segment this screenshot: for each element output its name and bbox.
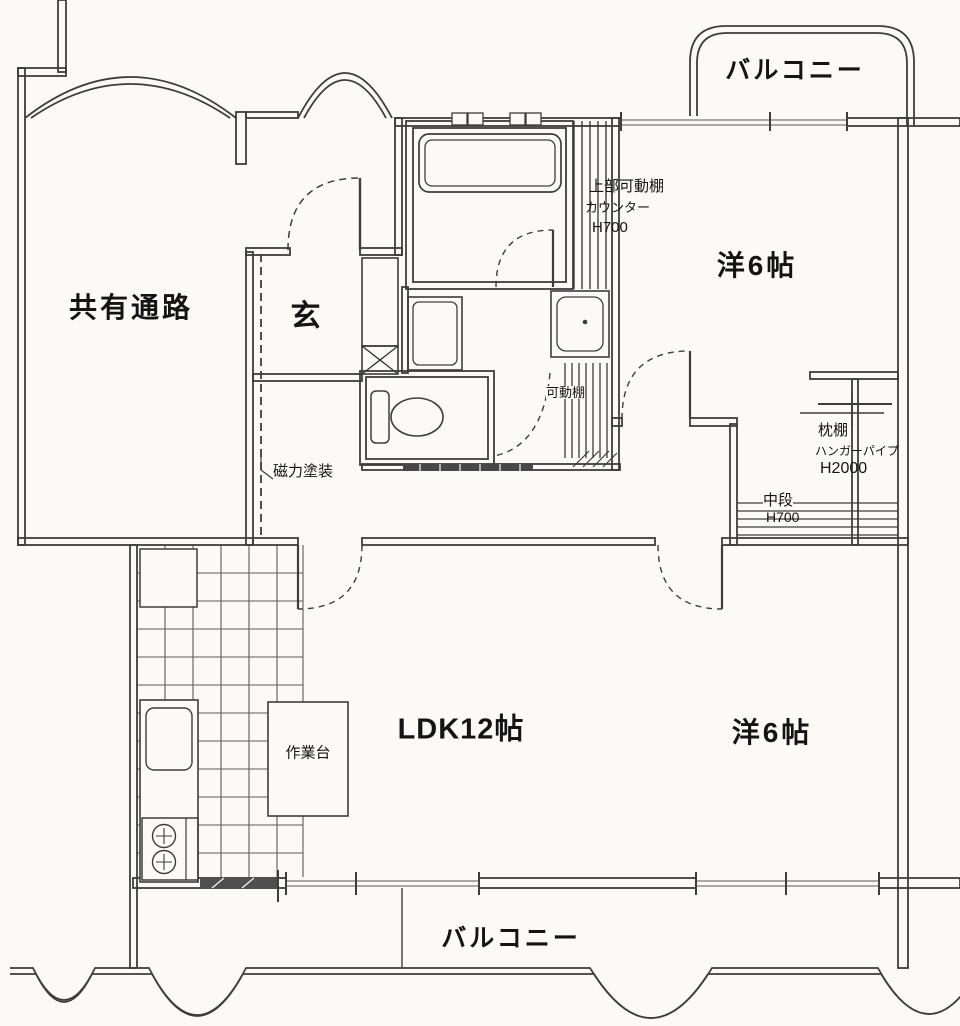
kitchen-counter [140,700,198,882]
wall-right [898,118,908,968]
fixtures [140,134,609,882]
annotation-counter: カウンター [585,201,650,214]
room-label-western-room-top: 洋6帖 [717,252,798,280]
entrance-step [253,374,362,381]
annotation-work-table: 作業台 [285,746,330,761]
room-label-balcony-bottom: バルコニー [441,927,581,952]
annotation-pillow-shelf: 枕棚 [818,423,848,438]
threshold-strip [403,464,533,471]
closet-shelf-edge [810,372,898,379]
movable-shelf-lines [565,363,607,458]
annotation-hanger-pipe: ハンガーパイプ [815,445,899,457]
annotation-hanger-pipe-height: H2000 [820,461,867,477]
middle-shelf-lines [737,503,898,535]
bathtub [419,134,561,192]
room-label-ldk: LDK12帖 [398,716,525,745]
annotation-upper-movable-shelf: 上部可動棚 [589,179,664,194]
toilet-room-walls [360,371,494,465]
washbasin [551,291,609,357]
balcony-bottom-edge [10,888,960,1018]
room-label-entrance: 玄 [291,302,324,332]
corridor-arches [25,73,392,164]
toilet-bowl [391,398,443,436]
corridor-left-wall [18,68,25,545]
entrance-west-wall [246,252,253,545]
toilet-tank [371,391,389,443]
front-door-swing [288,178,360,250]
floor-plan-drawing [0,0,960,1026]
annotation-counter-height: H700 [592,220,628,235]
magnetic-paint-leader [261,452,273,479]
annotation-middle-shelf-height: H700 [766,510,799,524]
refrigerator-space [140,549,197,607]
washing-machine-pan [408,297,462,370]
shoe-cabinet [362,258,398,346]
annotation-middle-shelf: 中段 [763,493,793,508]
floor-plan: バルコニー 共有通路 玄 洋6帖 LDK12帖 洋6帖 バルコニー 上部可動棚 … [0,0,960,1026]
room-label-shared-corridor: 共有通路 [69,294,193,322]
room-label-western-room-bottom: 洋6帖 [732,719,813,747]
annotation-magnetic-paint: 磁力塗装 [273,464,333,479]
annotation-movable-shelf: 可動棚 [546,386,585,399]
corridor-stub-wall [58,0,66,72]
kitchen-door [200,877,278,889]
corridor-bottom-wall [18,538,253,545]
room-label-balcony-top: バルコニー [725,59,865,84]
wall-left [130,545,137,968]
bathroom-walls [406,121,573,289]
